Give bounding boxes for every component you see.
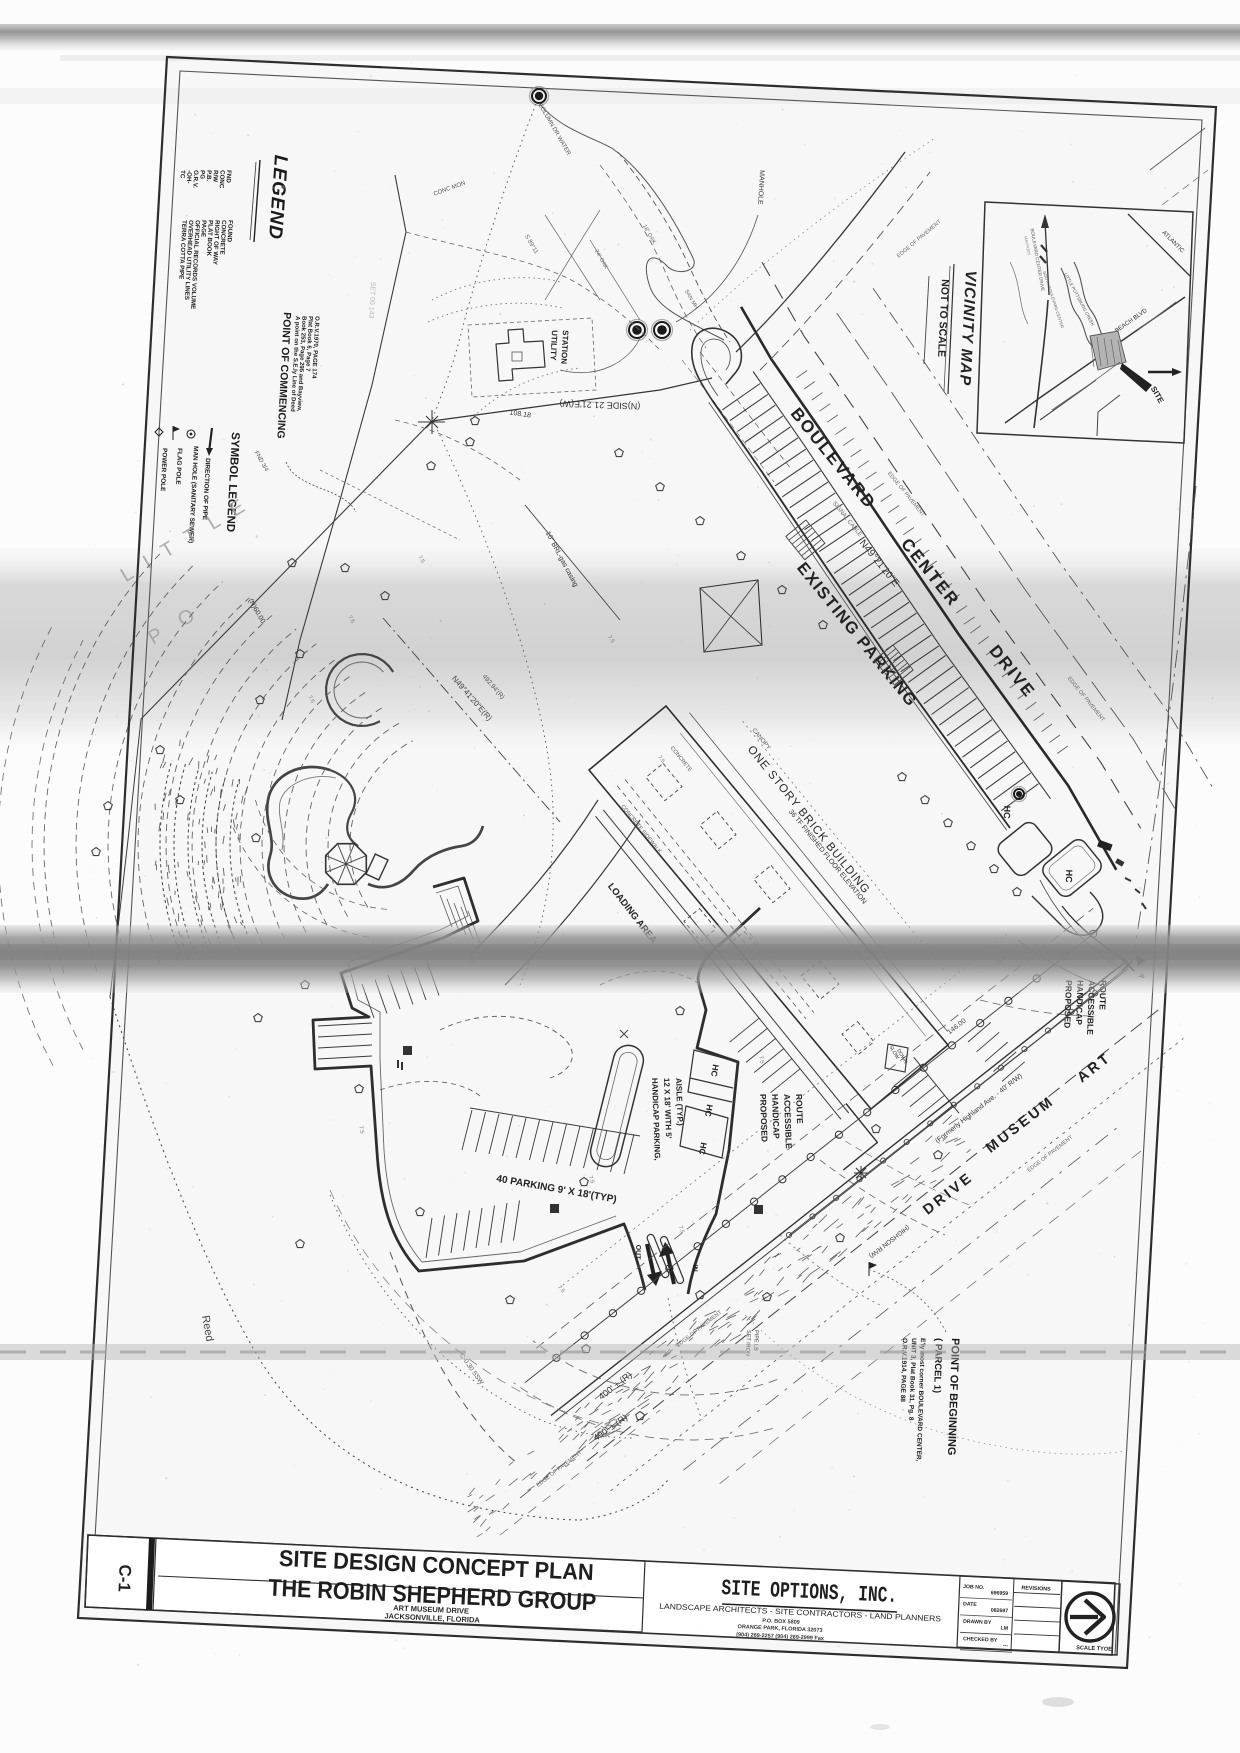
svg-text:082697: 082697 — [991, 1608, 1009, 1615]
svg-text:CONC: CONC — [218, 170, 226, 189]
svg-text:STATION: STATION — [559, 330, 570, 365]
svg-text:IN: IN — [691, 1264, 698, 1271]
svg-text:TC: TC — [179, 170, 186, 179]
svg-text:UTILITY: UTILITY — [548, 330, 559, 361]
svg-text:HC: HC — [1002, 805, 1012, 819]
svg-text:FOUND: FOUND — [226, 220, 234, 243]
svg-text:-OH-: -OH- — [185, 170, 193, 184]
svg-text:C-1: C-1 — [114, 1564, 134, 1592]
svg-text:HC: HC — [709, 1064, 721, 1078]
svg-text:696959: 696959 — [991, 1590, 1009, 1597]
svg-text:HC: HC — [697, 1142, 709, 1156]
svg-text:JOB NO.: JOB NO. — [963, 1584, 985, 1591]
svg-text:P.B.: P.B. — [205, 170, 213, 182]
svg-text:R/W: R/W — [211, 170, 219, 183]
svg-text:PAGE: PAGE — [199, 220, 207, 237]
svg-text:---: --- — [1003, 1643, 1009, 1649]
svg-text:PG: PG — [198, 170, 205, 179]
svg-text:HC: HC — [1064, 869, 1074, 883]
svg-text:OUT: OUT — [634, 1245, 642, 1261]
svg-text:O.R.V.: O.R.V. — [191, 170, 199, 189]
svg-text:ACCESSIBLE: ACCESSIBLE — [782, 1094, 794, 1149]
svg-text:PROPOSED: PROPOSED — [758, 1094, 770, 1143]
svg-text:HC: HC — [703, 1104, 715, 1118]
svg-text:AISLE (TYP.): AISLE (TYP.) — [674, 1078, 685, 1126]
svg-text:DATE: DATE — [963, 1601, 978, 1608]
svg-text:FND: FND — [225, 170, 233, 184]
